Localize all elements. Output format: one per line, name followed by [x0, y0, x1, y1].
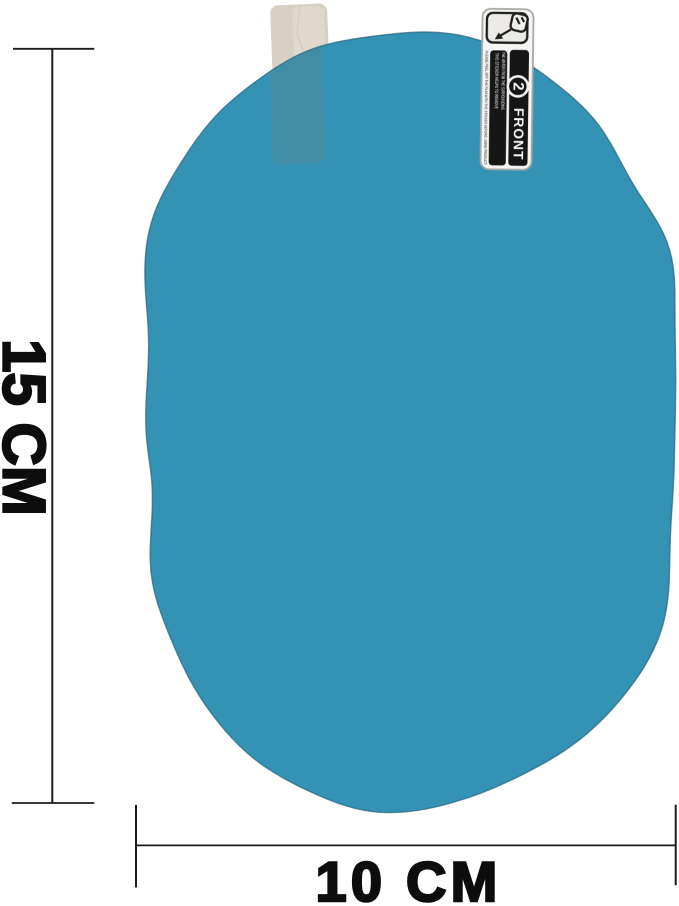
svg-text:FRONT: FRONT: [510, 108, 526, 161]
svg-text:2: 2: [510, 82, 527, 91]
svg-text:THIS STICKER HELPS TO REMOVE: THIS STICKER HELPS TO REMOVE: [494, 53, 500, 109]
svg-text:15 CM: 15 CM: [0, 339, 57, 516]
svg-text:THE WATER FROM THE SURROUNDING: THE WATER FROM THE SURROUNDING: [500, 52, 506, 110]
svg-text:10 CM: 10 CM: [316, 850, 502, 906]
